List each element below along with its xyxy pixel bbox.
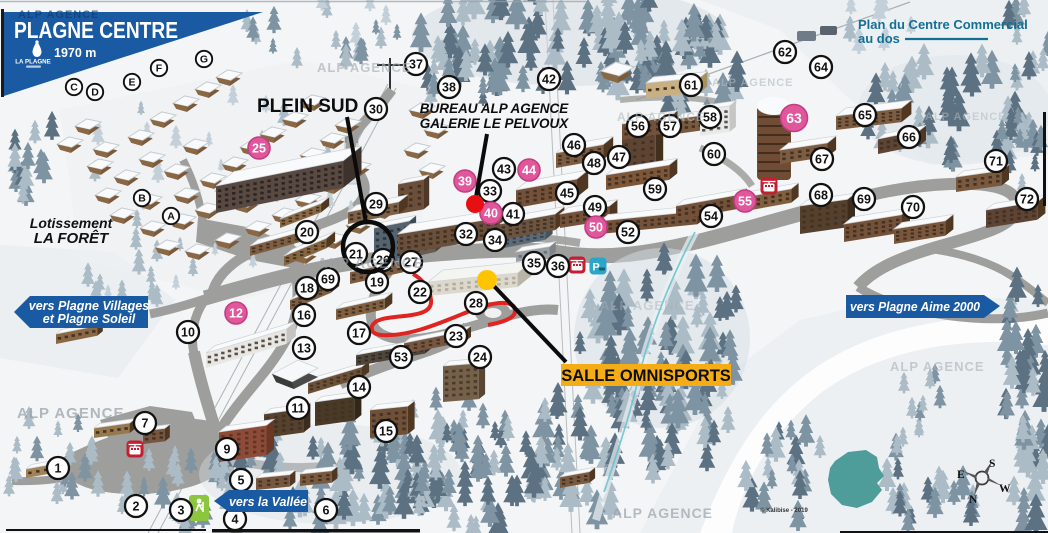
svg-text:24: 24 [473, 351, 487, 365]
svg-text:33: 33 [483, 185, 497, 199]
svg-text:67: 67 [815, 153, 829, 167]
svg-text:D: D [91, 87, 99, 99]
svg-text:38: 38 [442, 81, 456, 95]
svg-text:29: 29 [369, 198, 383, 212]
svg-text:W: W [999, 483, 1011, 495]
svg-text:47: 47 [612, 151, 626, 165]
svg-text:11: 11 [291, 402, 304, 416]
svg-text:20: 20 [300, 226, 314, 240]
svg-text:46: 46 [567, 139, 581, 153]
svg-text:ALP AGENCE: ALP AGENCE [890, 359, 985, 374]
svg-text:36: 36 [551, 260, 565, 274]
svg-text:14: 14 [352, 381, 366, 395]
svg-text:66: 66 [902, 131, 916, 145]
svg-text:SALLE OMNISPORTS: SALLE OMNISPORTS [561, 367, 731, 385]
svg-text:54: 54 [704, 210, 718, 224]
svg-text:LA FORÊT: LA FORÊT [34, 229, 110, 247]
svg-text:70: 70 [906, 201, 920, 215]
svg-text:22: 22 [413, 286, 427, 300]
svg-text:69: 69 [857, 193, 871, 207]
svg-text:65: 65 [858, 109, 872, 123]
svg-text:1: 1 [55, 462, 62, 476]
svg-text:61: 61 [684, 79, 698, 93]
svg-text:6: 6 [323, 504, 330, 518]
svg-text:3: 3 [178, 504, 185, 518]
svg-text:ALP AGENCE: ALP AGENCE [712, 77, 794, 89]
svg-text:G: G [200, 54, 208, 66]
svg-text:48: 48 [587, 157, 601, 171]
svg-text:16: 16 [297, 309, 311, 323]
svg-text:60: 60 [707, 148, 721, 162]
svg-text:GALERIE LE PELVOUX: GALERIE LE PELVOUX [420, 116, 570, 131]
svg-text:49: 49 [588, 201, 602, 215]
svg-text:PLAGNE CENTRE: PLAGNE CENTRE [14, 17, 178, 43]
svg-text:52: 52 [621, 226, 635, 240]
svg-text:vers la Vallée: vers la Vallée [229, 495, 307, 509]
svg-text:59: 59 [648, 183, 662, 197]
svg-text:34: 34 [488, 234, 502, 248]
svg-text:30: 30 [369, 103, 383, 117]
svg-text:2: 2 [133, 500, 140, 514]
svg-text:64: 64 [814, 61, 828, 75]
svg-text:25: 25 [252, 142, 266, 156]
svg-text:7: 7 [142, 417, 149, 431]
svg-text:13: 13 [297, 342, 311, 356]
svg-text:15: 15 [379, 425, 393, 439]
svg-text:P: P [592, 262, 599, 274]
svg-text:23: 23 [449, 330, 463, 344]
svg-text:© Kalibise - 2019: © Kalibise - 2019 [760, 507, 808, 514]
svg-text:43: 43 [497, 163, 511, 177]
svg-text:39: 39 [458, 175, 472, 189]
svg-text:vers Plagne Aime 2000: vers Plagne Aime 2000 [850, 299, 981, 314]
svg-text:50: 50 [589, 221, 603, 235]
svg-text:vers Plagne Villages: vers Plagne Villages [29, 299, 149, 313]
svg-text:5: 5 [238, 474, 245, 488]
svg-text:9: 9 [224, 443, 231, 457]
svg-text:71: 71 [989, 155, 1003, 169]
svg-text:ALP AGENCE: ALP AGENCE [600, 298, 695, 313]
svg-text:S: S [989, 458, 995, 470]
svg-text:17: 17 [352, 327, 366, 341]
svg-text:LA PLAGNE: LA PLAGNE [15, 59, 51, 66]
svg-text:18: 18 [300, 282, 314, 296]
svg-text:et Plagne Soleil: et Plagne Soleil [43, 312, 136, 326]
svg-text:35: 35 [527, 257, 541, 271]
svg-text:63: 63 [786, 110, 802, 126]
svg-text:ALP AGENCE: ALP AGENCE [317, 255, 425, 272]
svg-text:E: E [957, 469, 965, 481]
svg-text:ALP AGENCE: ALP AGENCE [612, 505, 713, 521]
svg-text:58: 58 [703, 111, 717, 125]
svg-text:C: C [70, 82, 78, 94]
svg-text:Lotissement: Lotissement [30, 215, 114, 231]
svg-text:45: 45 [560, 187, 574, 201]
svg-text:10: 10 [181, 326, 195, 340]
svg-text:4: 4 [232, 513, 239, 527]
svg-text:E: E [128, 77, 135, 89]
svg-text:28: 28 [469, 297, 483, 311]
svg-text:32: 32 [459, 228, 473, 242]
svg-text:55: 55 [738, 195, 752, 209]
svg-text:44: 44 [522, 164, 536, 178]
svg-text:Plan du Centre Commercial: Plan du Centre Commercial [858, 17, 1028, 32]
svg-text:1970 m: 1970 m [54, 46, 96, 60]
svg-text:42: 42 [542, 73, 556, 87]
svg-text:F: F [156, 63, 163, 75]
svg-text:72: 72 [1020, 193, 1034, 207]
svg-text:69: 69 [321, 273, 335, 287]
svg-text:N: N [969, 494, 978, 506]
svg-text:ALP AGENCE: ALP AGENCE [17, 405, 125, 422]
svg-text:62: 62 [778, 46, 792, 60]
svg-text:PLEIN SUD: PLEIN SUD [257, 96, 358, 117]
svg-text:40: 40 [484, 207, 498, 221]
svg-text:BUREAU ALP AGENCE: BUREAU ALP AGENCE [420, 101, 570, 116]
svg-text:A: A [167, 211, 175, 223]
svg-text:12: 12 [229, 307, 243, 321]
svg-text:ALP AGENCE: ALP AGENCE [617, 110, 705, 124]
svg-text:68: 68 [814, 189, 828, 203]
svg-text:ALP AGENCE: ALP AGENCE [317, 60, 412, 75]
svg-text:53: 53 [394, 351, 408, 365]
svg-text:au dos: au dos [858, 31, 900, 46]
svg-text:41: 41 [506, 208, 520, 222]
svg-text:B: B [138, 193, 146, 205]
svg-text:ALP AGENCE: ALP AGENCE [925, 111, 1007, 123]
svg-text:19: 19 [370, 276, 384, 290]
